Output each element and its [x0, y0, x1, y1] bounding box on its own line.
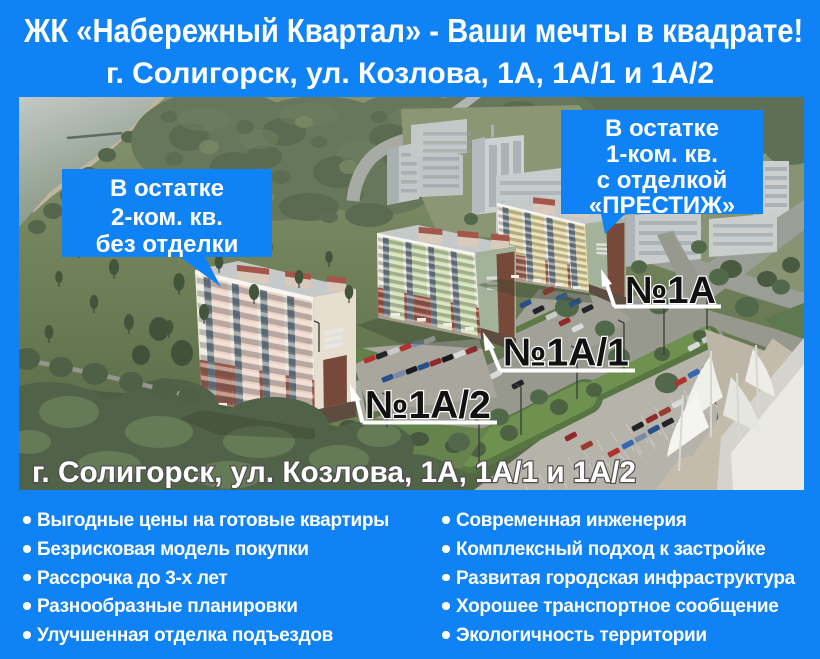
svg-text:2-ком. кв.: 2-ком. кв.: [111, 204, 223, 231]
svg-text:с отделкой: с отделкой: [597, 167, 727, 194]
svg-text:№1А: №1А: [625, 270, 716, 312]
svg-text:г. Солигорск, ул. Козлова, 1А,: г. Солигорск, ул. Козлова, 1А, 1А/1 и 1А…: [32, 456, 636, 489]
svg-text:1-ком. кв.: 1-ком. кв.: [606, 141, 718, 168]
svg-text:№1А/2: №1А/2: [365, 384, 491, 427]
svg-text:В остатке: В остатке: [605, 115, 719, 142]
svg-text:«ПРЕСТИЖ»: «ПРЕСТИЖ»: [589, 192, 735, 219]
svg-text:В остатке: В остатке: [110, 175, 224, 202]
svg-text:без отделки: без отделки: [96, 231, 239, 258]
svg-text:№1А/1: №1А/1: [503, 332, 629, 375]
